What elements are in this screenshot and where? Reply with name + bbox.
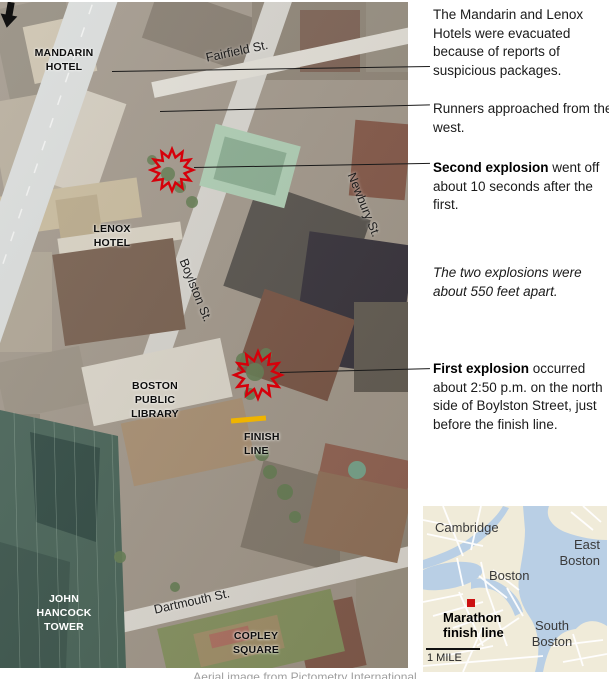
note-evacuation: The Mandarin and Lenox Hotels were evacu… xyxy=(433,6,609,80)
inset-locator-map: Cambridge East Boston Boston South Bosto… xyxy=(423,506,607,672)
note-runners-text: Runners approached from the west. xyxy=(433,101,609,135)
scale-label: 1 MILE xyxy=(427,652,462,664)
note-runners: Runners approached from the west. xyxy=(433,100,609,137)
label-john-hancock-tower: JOHN HANCOCK TOWER xyxy=(12,592,116,634)
second-explosion-icon xyxy=(148,146,196,194)
aerial-photo: MANDARIN HOTEL LENOX HOTEL BOSTON PUBLIC… xyxy=(0,2,408,668)
finish-line-marker xyxy=(467,599,475,607)
note-distance: The two explosions were about 550 feet a… xyxy=(433,264,609,301)
label-boston-public-library: BOSTON PUBLIC LIBRARY xyxy=(103,379,207,421)
inset-label-marathon-finish-line: Marathon finish line xyxy=(443,610,504,640)
inset-label-boston: Boston xyxy=(489,568,529,584)
note-first-explosion-lead: First explosion xyxy=(433,361,529,376)
scale-bar xyxy=(426,648,480,650)
label-finish-line: FINISH LINE xyxy=(244,430,304,458)
news-graphic: MANDARIN HOTEL LENOX HOTEL BOSTON PUBLIC… xyxy=(0,0,609,679)
note-evacuation-text: The Mandarin and Lenox Hotels were evacu… xyxy=(433,7,583,78)
note-distance-text: The two explosions were about 550 feet a… xyxy=(433,265,582,299)
note-first-explosion: First explosion occurred about 2:50 p.m.… xyxy=(433,360,609,434)
first-explosion-icon xyxy=(231,348,285,402)
inset-label-cambridge: Cambridge xyxy=(435,520,499,536)
label-copley-square: COPLEY SQUARE xyxy=(208,629,304,657)
label-mandarin-hotel: MANDARIN HOTEL xyxy=(18,46,110,74)
photo-credit: Aerial image from Pictometry Internation… xyxy=(140,670,470,679)
note-second-explosion-lead: Second explosion xyxy=(433,160,549,175)
inset-label-south-boston: South Boston xyxy=(523,618,581,649)
inset-label-east-boston: East Boston xyxy=(541,537,600,568)
label-lenox-hotel: LENOX HOTEL xyxy=(76,222,148,250)
aerial-photo-art xyxy=(0,2,408,668)
note-second-explosion: Second explosion went off about 10 secon… xyxy=(433,159,609,215)
